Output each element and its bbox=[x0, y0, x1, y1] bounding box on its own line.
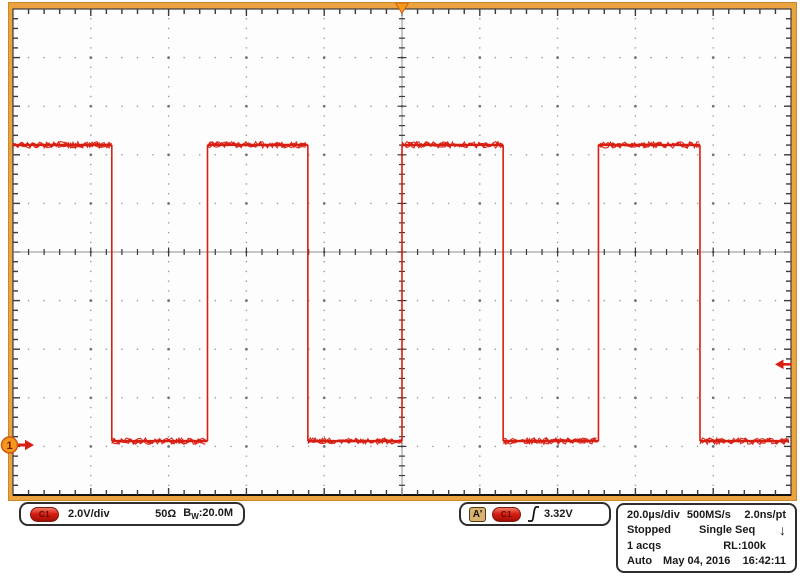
channel1-readout[interactable]: C1 2.0V/div 50Ω BW:20.0M bbox=[19, 502, 245, 526]
channel1-bandwidth: BW:20.0M bbox=[183, 507, 233, 521]
trigger-channel-badge[interactable]: C1 bbox=[492, 507, 521, 522]
channel1-badge[interactable]: C1 bbox=[30, 507, 59, 522]
channel1-impedance: 50Ω bbox=[155, 508, 176, 520]
datetime-row: Auto May 04, 2016 16:42:11 bbox=[627, 554, 786, 568]
date: May 04, 2016 bbox=[663, 554, 730, 568]
acq-count: 1 acqs bbox=[627, 539, 661, 553]
trigger-mode: Auto bbox=[627, 554, 652, 568]
rising-edge-icon bbox=[527, 506, 540, 522]
record-length: RL:100k bbox=[723, 539, 766, 553]
timebase-row: 20.0µs/div 500MS/s 2.0ns/pt bbox=[627, 508, 786, 522]
down-arrow-icon: ↓ bbox=[779, 524, 786, 536]
timebase: 20.0µs/div bbox=[627, 508, 680, 522]
trigger-level: 3.32V bbox=[544, 508, 573, 520]
channel1-scale: 2.0V/div bbox=[68, 508, 110, 520]
oscilloscope-screen: 1 C1 2.0V/div 50Ω BW:20.0M A' C1 3.32V 2… bbox=[0, 0, 800, 577]
scope-display: 1 bbox=[0, 0, 800, 501]
run-state: Stopped bbox=[627, 523, 671, 537]
acq-state-row: Stopped Single Seq ↓ bbox=[627, 523, 786, 537]
acq-mode: Single Seq bbox=[699, 523, 755, 537]
acq-count-row: 1 acqs RL:100k bbox=[627, 539, 786, 553]
trigger-source-badge[interactable]: A' bbox=[469, 507, 486, 522]
time: 16:42:11 bbox=[743, 554, 786, 568]
channel1-number-label: 1 bbox=[6, 440, 12, 452]
sample-rate: 500MS/s bbox=[687, 508, 731, 522]
sample-interval: 2.0ns/pt bbox=[744, 508, 786, 522]
acquisition-readout[interactable]: 20.0µs/div 500MS/s 2.0ns/pt Stopped Sing… bbox=[616, 503, 797, 573]
trigger-readout[interactable]: A' C1 3.32V bbox=[459, 502, 611, 526]
